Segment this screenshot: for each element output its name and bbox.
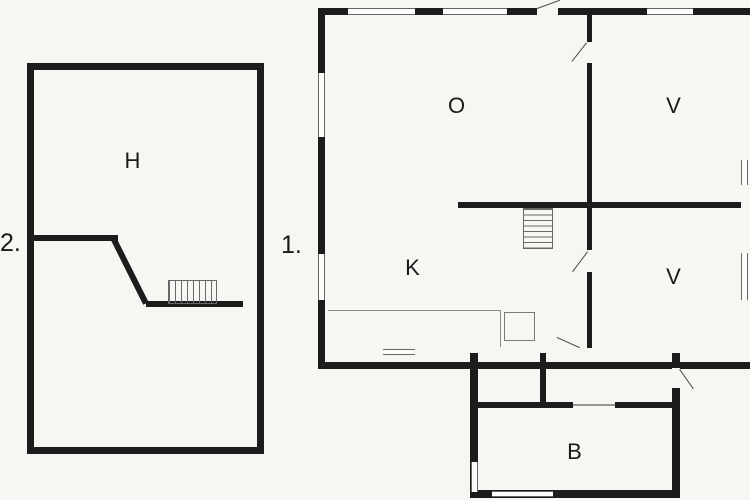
window-extension-left [471,462,478,492]
room-label-h: H [111,148,155,174]
sliding-door-line [573,404,615,406]
room-label-v-upper: V [652,93,696,119]
extension-interior-wall-horizontal-2 [615,402,672,408]
floor-2-number: 2. [0,229,21,258]
room-label-o: O [435,93,479,119]
interior-wall-horizontal [458,202,741,208]
window-right-2 [741,253,748,300]
extension-interior-wall-vertical [540,353,546,405]
floor2-interior-wall-upper [33,235,118,241]
window-top-1 [348,8,415,15]
room-label-b: B [553,439,597,465]
window-extension-bottom [492,491,553,497]
door-swing-extension-entrance [679,369,694,389]
door-opening-hall [557,347,578,355]
floor-1-number: 1. [281,231,302,260]
door-opening-extension-right [672,368,680,388]
window-left-2 [318,254,325,300]
floor2-outer-wall [27,63,264,454]
floorplan-canvas: H 2. [0,0,750,500]
interior-wall-vertical-seg1 [587,15,592,42]
interior-wall-vertical-seg3 [587,272,592,348]
extension-interior-wall-horizontal-1 [478,402,573,408]
sink [504,312,535,341]
kitchen-counter-line-v [500,310,501,347]
room-label-k: K [391,255,435,281]
staircase-floor1 [523,208,553,249]
window-top-3 [647,8,693,15]
window-left-1 [318,73,325,137]
staircase-floor2 [168,280,217,304]
room-label-v-lower: V [652,264,696,290]
window-right-1 [741,160,748,185]
interior-wall-vertical-seg2 [587,63,592,250]
window-bottom-k [383,349,415,355]
window-top-2 [443,8,507,15]
kitchen-counter-line-h [328,310,500,311]
door-opening-top [537,8,558,15]
